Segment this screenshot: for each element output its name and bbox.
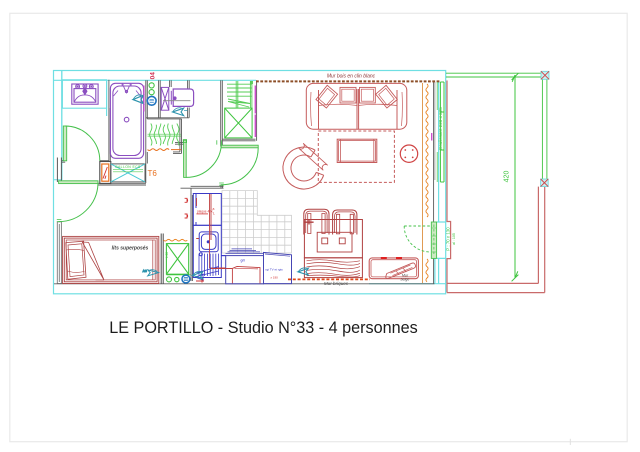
svg-text:gril: gril (241, 259, 246, 263)
svg-text:P : 70 x 130: P : 70 x 130 (445, 227, 450, 251)
svg-text:LE PORTILLO - Studio N°33 - 4: LE PORTILLO - Studio N°33 - 4 personnes (109, 319, 418, 337)
svg-text:BALLON ECS: BALLON ECS (115, 165, 141, 169)
svg-text:04: 04 (150, 72, 157, 80)
svg-text:A/3: A/3 (143, 269, 148, 273)
svg-text:x 190: x 190 (271, 275, 279, 279)
svg-text:L 60: L 60 (165, 252, 169, 258)
svg-text:al : 105: al : 105 (452, 233, 456, 245)
svg-text:T6: T6 (148, 169, 158, 178)
svg-text:Mur bois en clin blanc: Mur bois en clin blanc (327, 73, 376, 79)
svg-text:beige: beige (401, 278, 410, 282)
svg-text:L: L (213, 212, 215, 216)
svg-text:420: 420 (503, 171, 510, 183)
svg-text:a: a (213, 207, 215, 211)
svg-text:rgt TV et rgts: rgt TV et rgts (266, 268, 284, 272)
svg-text:Mur briques: Mur briques (324, 281, 349, 286)
svg-text:lits superposés: lits superposés (112, 245, 149, 251)
svg-text:Coulissant 220 x 225: Coulissant 220 x 225 (438, 107, 443, 150)
